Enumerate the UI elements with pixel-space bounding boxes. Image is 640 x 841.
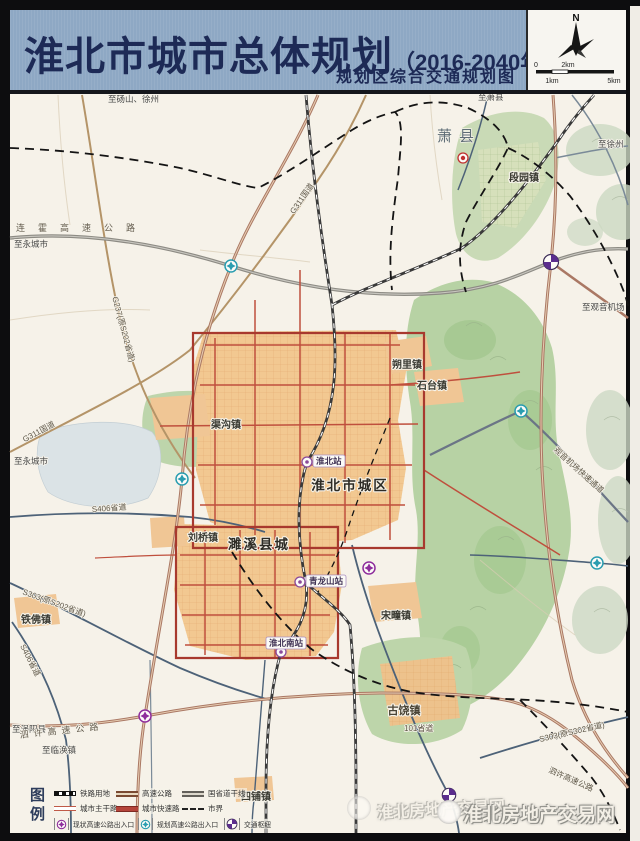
watermark-logo-icon bbox=[437, 800, 461, 824]
label-songtuan-town: 宋疃镇 bbox=[380, 609, 411, 622]
legend-label: 交通枢纽 bbox=[243, 819, 272, 829]
label-lianhuo-expressway: 连霍高速公路 bbox=[16, 222, 148, 233]
map-header: 淮北市城市总体规划（2016-2040年） 规划区综合交通规划图 N 0 2km… bbox=[10, 10, 626, 94]
label-s101: 101省道 bbox=[404, 723, 433, 733]
compass-rose-icon bbox=[558, 22, 594, 58]
watermark: 淮北房地产交易网 淮北房地产交易网 bbox=[345, 788, 630, 836]
legend-item-urban-expressway: 城市快速路 bbox=[116, 803, 178, 814]
transport-hub-icon bbox=[544, 255, 559, 270]
label-to-guanyin-airport: 至观音机场 bbox=[582, 302, 625, 312]
page-margin bbox=[630, 6, 640, 841]
railway-station-icon bbox=[302, 457, 312, 467]
label-shuoli-town: 朔里镇 bbox=[392, 358, 422, 371]
existing-interchange-icon bbox=[139, 710, 151, 722]
legend-item-expressway: 高速公路 bbox=[116, 788, 178, 799]
legend-item-arterial: 城市主干路 bbox=[54, 803, 112, 814]
label-huaibei-south-station: 淮北南站 bbox=[269, 638, 304, 648]
legend-items: 铁路用地 高速公路 国省道干线 城市主干路 城市快速路 市界 bbox=[54, 786, 276, 834]
boundary-swatch-icon bbox=[182, 808, 204, 810]
label-suixi-city: 濉溪县城 bbox=[227, 536, 290, 552]
map-legend: 图例 铁路用地 高速公路 国省道干线 城市主干路 城市快速路 bbox=[30, 786, 276, 834]
label-shitai-town: 石台镇 bbox=[416, 379, 447, 392]
legend-item-existing-interchange: 现状高速公路出入口 bbox=[54, 818, 134, 830]
label-xiaoxian-county: 萧县 bbox=[437, 128, 481, 145]
legend-item-railway: 铁路用地 bbox=[54, 788, 112, 799]
label-to-yongcheng-1: 至永城市 bbox=[14, 239, 49, 249]
legend-label: 高速公路 bbox=[141, 788, 173, 799]
legend-item-national-road: 国省道干线 bbox=[182, 788, 274, 799]
urban-expressway-swatch-icon bbox=[116, 806, 138, 812]
existing-interchange-icon bbox=[363, 562, 375, 574]
legend-label: 现状高速公路出入口 bbox=[72, 819, 135, 829]
planning-map: 至砀山、徐州 至萧县 至徐州 萧县 段园镇 连霍高速公路 G311国道 G311… bbox=[0, 0, 640, 841]
label-qinglongshan-station: 青龙山站 bbox=[309, 576, 344, 586]
lake bbox=[37, 422, 161, 506]
watermark-text-front: 淮北房地产交易网 bbox=[463, 800, 615, 827]
national-road-swatch-icon bbox=[182, 791, 204, 797]
legend-label: 规划高速公路出入口 bbox=[156, 819, 219, 829]
planned-interchange-icon bbox=[591, 557, 603, 569]
existing-interchange-legend-icon bbox=[54, 818, 69, 830]
scale-1km: 1km bbox=[545, 78, 558, 85]
planned-interchange-icon bbox=[176, 473, 188, 485]
railway-swatch-icon bbox=[54, 791, 76, 796]
legend-label: 城市快速路 bbox=[141, 803, 181, 814]
label-tiefo-town: 铁佛镇 bbox=[21, 613, 51, 626]
planned-interchange-legend-icon bbox=[138, 818, 153, 830]
county-seat-icon bbox=[458, 153, 468, 163]
label-to-linhuan: 至临涣镇 bbox=[42, 745, 77, 755]
scale-0: 0 bbox=[534, 62, 538, 69]
legend-item-planned-interchange: 规划高速公路出入口 bbox=[138, 818, 220, 830]
expressway-swatch-icon bbox=[116, 791, 138, 797]
label-to-dangshan-xuzhou: 至砀山、徐州 bbox=[108, 94, 159, 104]
railway-station-icon bbox=[295, 577, 305, 587]
label-gurao-town: 古饶镇 bbox=[388, 703, 421, 717]
scale-5km: 5km bbox=[607, 78, 620, 85]
label-qugou-town: 渠沟镇 bbox=[210, 418, 241, 431]
title-area: 淮北市城市总体规划（2016-2040年） 规划区综合交通规划图 bbox=[10, 10, 526, 90]
label-duanyuan-town: 段园镇 bbox=[509, 171, 539, 184]
legend-item-boundary: 市界 bbox=[182, 803, 274, 814]
planned-interchange-icon bbox=[225, 260, 237, 272]
label-huaibei-station: 淮北站 bbox=[316, 456, 342, 466]
label-liuqiao-town: 刘桥镇 bbox=[188, 531, 218, 544]
label-huaibei-city: 淮北市城区 bbox=[311, 477, 389, 493]
legend-label: 城市主干路 bbox=[79, 803, 119, 814]
legend-title: 图例 bbox=[30, 786, 47, 834]
arterial-swatch-icon bbox=[54, 806, 76, 811]
compass-panel: N 0 2km 1km 5km bbox=[526, 10, 626, 90]
legend-label: 铁路用地 bbox=[79, 788, 111, 799]
compass-and-scale: N 0 2km 1km 5km bbox=[528, 10, 624, 92]
legend-item-hub: 交通枢纽 bbox=[224, 818, 276, 830]
planned-interchange-icon bbox=[515, 405, 527, 417]
scale-2km: 2km bbox=[561, 62, 574, 69]
scale-bar: 0 2km 1km 5km bbox=[534, 62, 621, 85]
watermark-logo-icon bbox=[347, 796, 371, 820]
map-subtitle: 规划区综合交通规划图 bbox=[336, 63, 516, 87]
legend-label: 国省道干线 bbox=[207, 788, 247, 799]
label-to-yongcheng-2: 至永城市 bbox=[14, 456, 49, 466]
legend-label: 市界 bbox=[207, 803, 224, 814]
hub-legend-icon bbox=[224, 818, 240, 830]
label-to-xuzhou: 至徐州 bbox=[598, 139, 624, 149]
